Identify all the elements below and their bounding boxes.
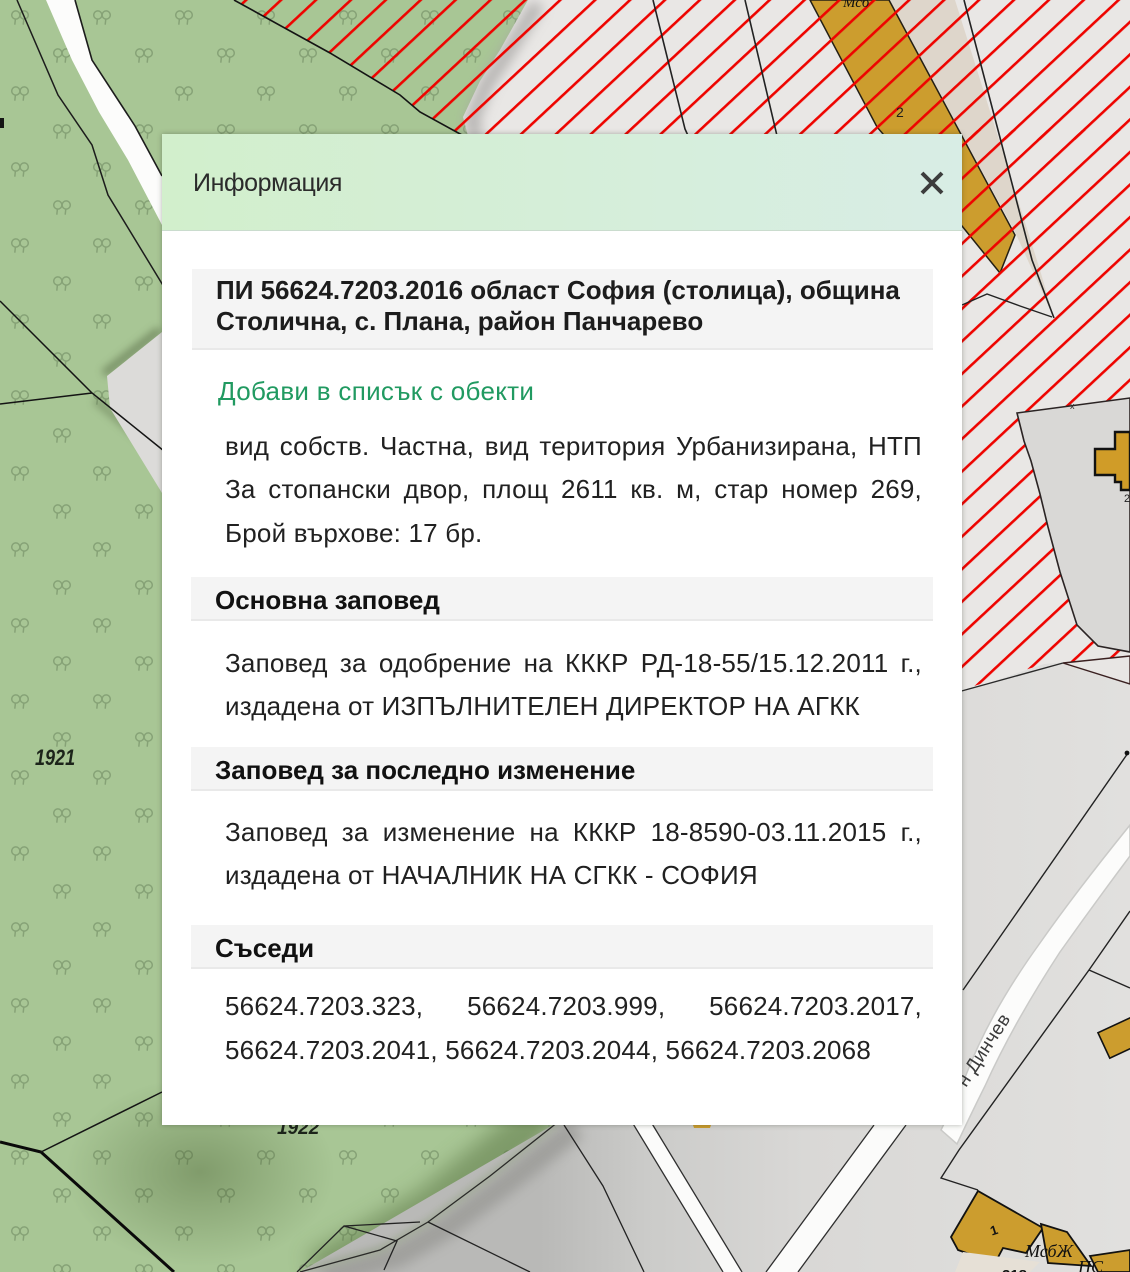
svg-text:2: 2	[1124, 493, 1130, 505]
svg-text:1921: 1921	[35, 746, 75, 770]
svg-text:318: 318	[1002, 1267, 1027, 1272]
svg-text:Мсб: Мсб	[842, 0, 870, 11]
svg-text:МсбЖ: МсбЖ	[1024, 1241, 1075, 1261]
svg-text:ПС: ПС	[1077, 1257, 1104, 1272]
svg-text:2: 2	[896, 104, 904, 120]
svg-text:x: x	[1070, 401, 1075, 411]
